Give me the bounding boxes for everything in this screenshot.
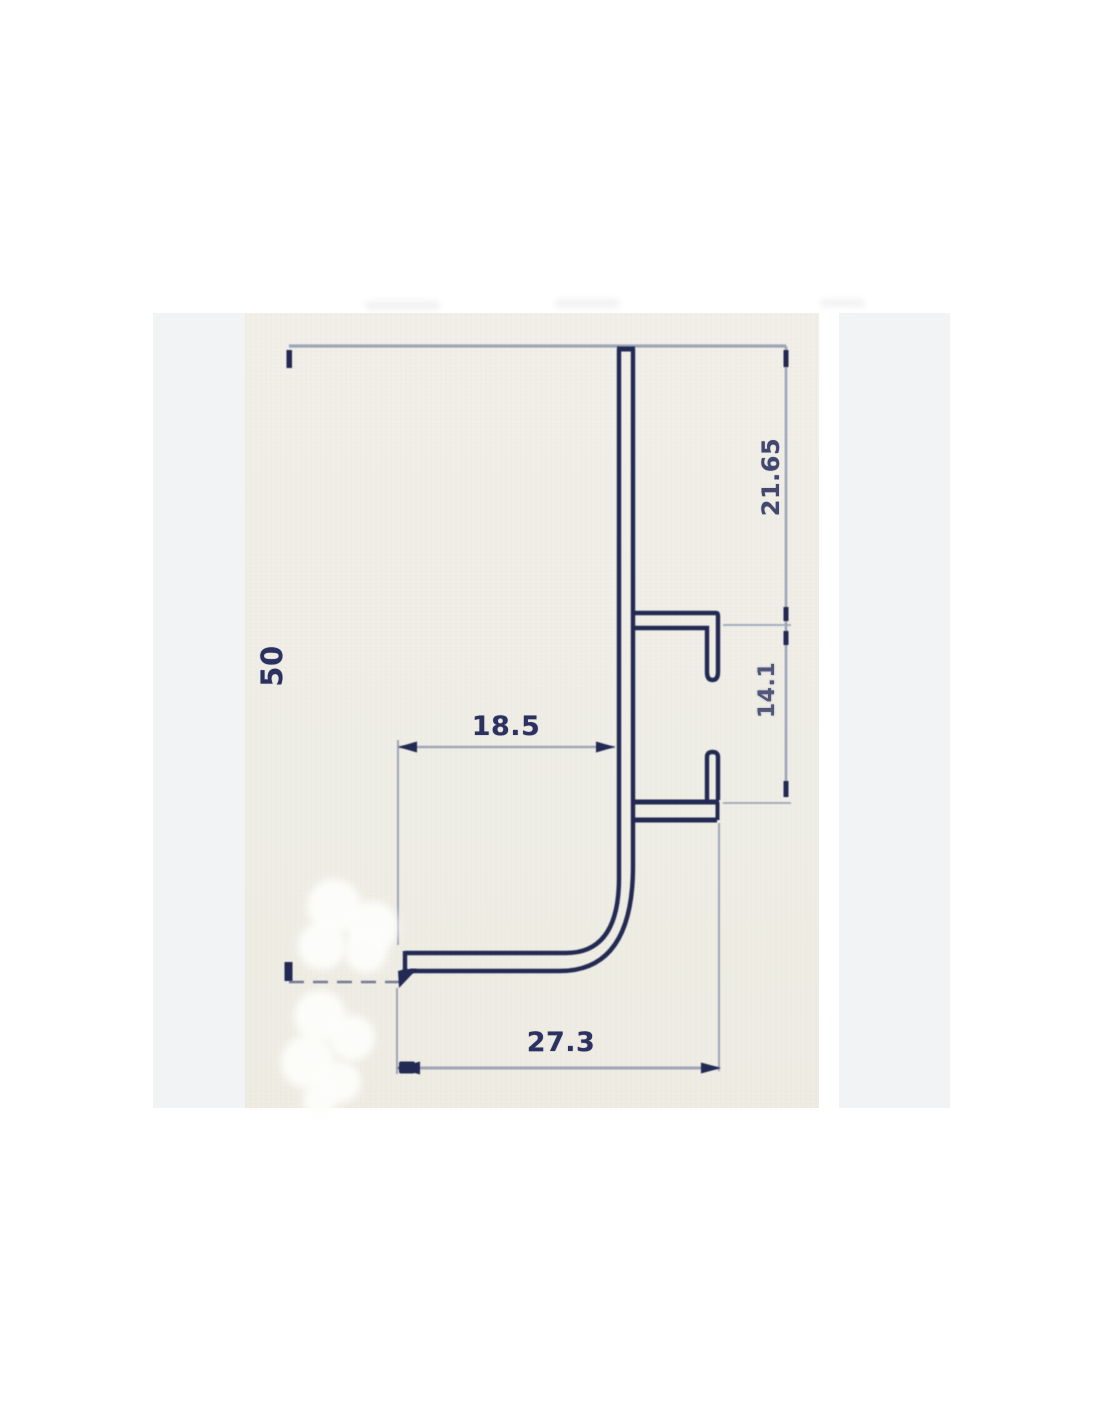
- dim-label-height: 50: [254, 644, 290, 688]
- dim-label-inner-width: 18.5: [461, 710, 551, 742]
- whiteout-blob: [345, 931, 387, 973]
- whiteout-blob: [298, 922, 346, 970]
- screenshot-page: 50 21.65 14.1 18.5 27.3: [0, 0, 1100, 1422]
- profile-drawing: [150, 300, 960, 1130]
- dim-label-top-segment: 21.65: [756, 433, 786, 521]
- base-end-lip: [398, 969, 417, 988]
- dim-label-outer-width: 27.3: [516, 1026, 606, 1058]
- whiteout-blob: [303, 1083, 337, 1117]
- dim-label-slot-segment: 14.1: [753, 653, 781, 727]
- profile-outline: [405, 349, 719, 973]
- profile-drawing-svg: [150, 300, 960, 1130]
- whiteout-blob: [329, 1015, 375, 1061]
